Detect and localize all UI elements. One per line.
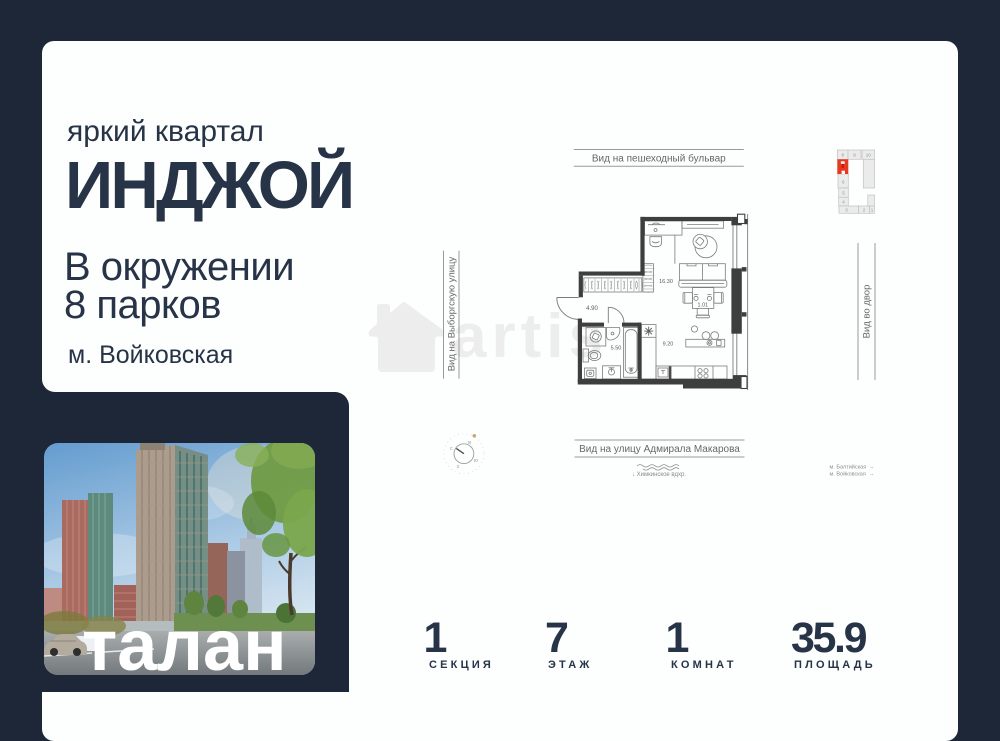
svg-text:16.30: 16.30 <box>659 279 673 285</box>
svg-text:з: з <box>457 464 460 470</box>
svg-text:Вид на пешеходный бульвар: Вид на пешеходный бульвар <box>592 153 726 165</box>
svg-text:→: → <box>869 465 875 471</box>
svg-text:Вид на Выборгскую улицу: Вид на Выборгскую улицу <box>447 256 458 371</box>
svg-text:талан: талан <box>82 606 287 675</box>
svg-text:м. Войковская: м. Войковская <box>830 471 866 478</box>
svg-text:5.50: 5.50 <box>611 346 622 352</box>
svg-text:с: с <box>450 446 453 452</box>
svg-text:9.20: 9.20 <box>663 342 674 348</box>
svg-text:в: в <box>468 440 471 446</box>
svg-text:artis: artis <box>452 302 608 371</box>
svg-text:4.90: 4.90 <box>586 306 598 312</box>
svg-text:↓ Химкинское вдхр.: ↓ Химкинское вдхр. <box>632 472 686 478</box>
svg-text:1.01: 1.01 <box>698 303 709 309</box>
svg-text:→: → <box>869 472 875 478</box>
svg-text:м. Балтийская: м. Балтийская <box>830 464 867 471</box>
svg-text:Вид во двор: Вид во двор <box>862 285 873 339</box>
svg-text:Вид на улицу Адмирала Макарова: Вид на улицу Адмирала Макарова <box>579 444 740 455</box>
svg-text:ю: ю <box>474 458 478 464</box>
svg-text:10: 10 <box>866 153 872 158</box>
